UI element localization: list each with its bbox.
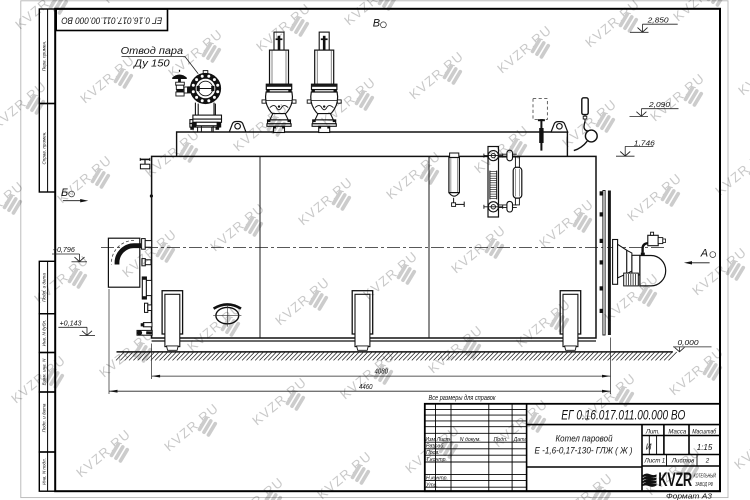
svg-text:Все размеры для справок: Все размеры для справок: [429, 393, 496, 402]
svg-text:Масса: Масса: [668, 429, 686, 435]
svg-text:Перв. примен.: Перв. примен.: [42, 41, 47, 72]
svg-text:Подп. и дата: Подп. и дата: [42, 403, 47, 432]
svg-text:Инв. N дубл.: Инв. N дубл.: [42, 320, 47, 347]
svg-text:Утв.: Утв.: [426, 482, 438, 488]
svg-text:В: В: [373, 18, 380, 30]
svg-text:N докум.: N докум.: [460, 437, 481, 443]
svg-text:2,850: 2,850: [646, 16, 669, 25]
svg-text:Формат А3: Формат А3: [666, 492, 713, 500]
svg-text:1: 1: [662, 458, 665, 465]
svg-text:0,000: 0,000: [678, 338, 700, 347]
svg-text:Ду 150: Ду 150: [133, 59, 170, 70]
svg-text:2: 2: [705, 458, 710, 465]
svg-text:Е -1,6-0,17-130- ГЛЖ ( Ж ): Е -1,6-0,17-130- ГЛЖ ( Ж ): [535, 446, 633, 456]
svg-text:Масштаб: Масштаб: [692, 429, 717, 435]
svg-text:ЗАВОД РФ: ЗАВОД РФ: [695, 482, 713, 488]
svg-text:И: И: [646, 443, 652, 452]
svg-text:КОТЕЛЬНЫЙ: КОТЕЛЬНЫЙ: [694, 472, 717, 480]
svg-text:Справ. примен.: Справ. примен.: [42, 131, 47, 164]
svg-text:ЕГ 0.16.017.011.00.000 ВО: ЕГ 0.16.017.011.00.000 ВО: [61, 14, 163, 25]
svg-text:+0,796: +0,796: [53, 245, 76, 254]
svg-text:Лит.: Лит.: [645, 429, 660, 435]
svg-text:Инв. N подл.: Инв. N подл.: [42, 458, 47, 485]
svg-text:Лист: Лист: [644, 458, 661, 465]
svg-text:+0,143: +0,143: [60, 318, 83, 327]
svg-text:Н.контр.: Н.контр.: [426, 476, 448, 482]
svg-text:А: А: [700, 247, 708, 259]
svg-text:Котел паровой: Котел паровой: [556, 432, 614, 443]
